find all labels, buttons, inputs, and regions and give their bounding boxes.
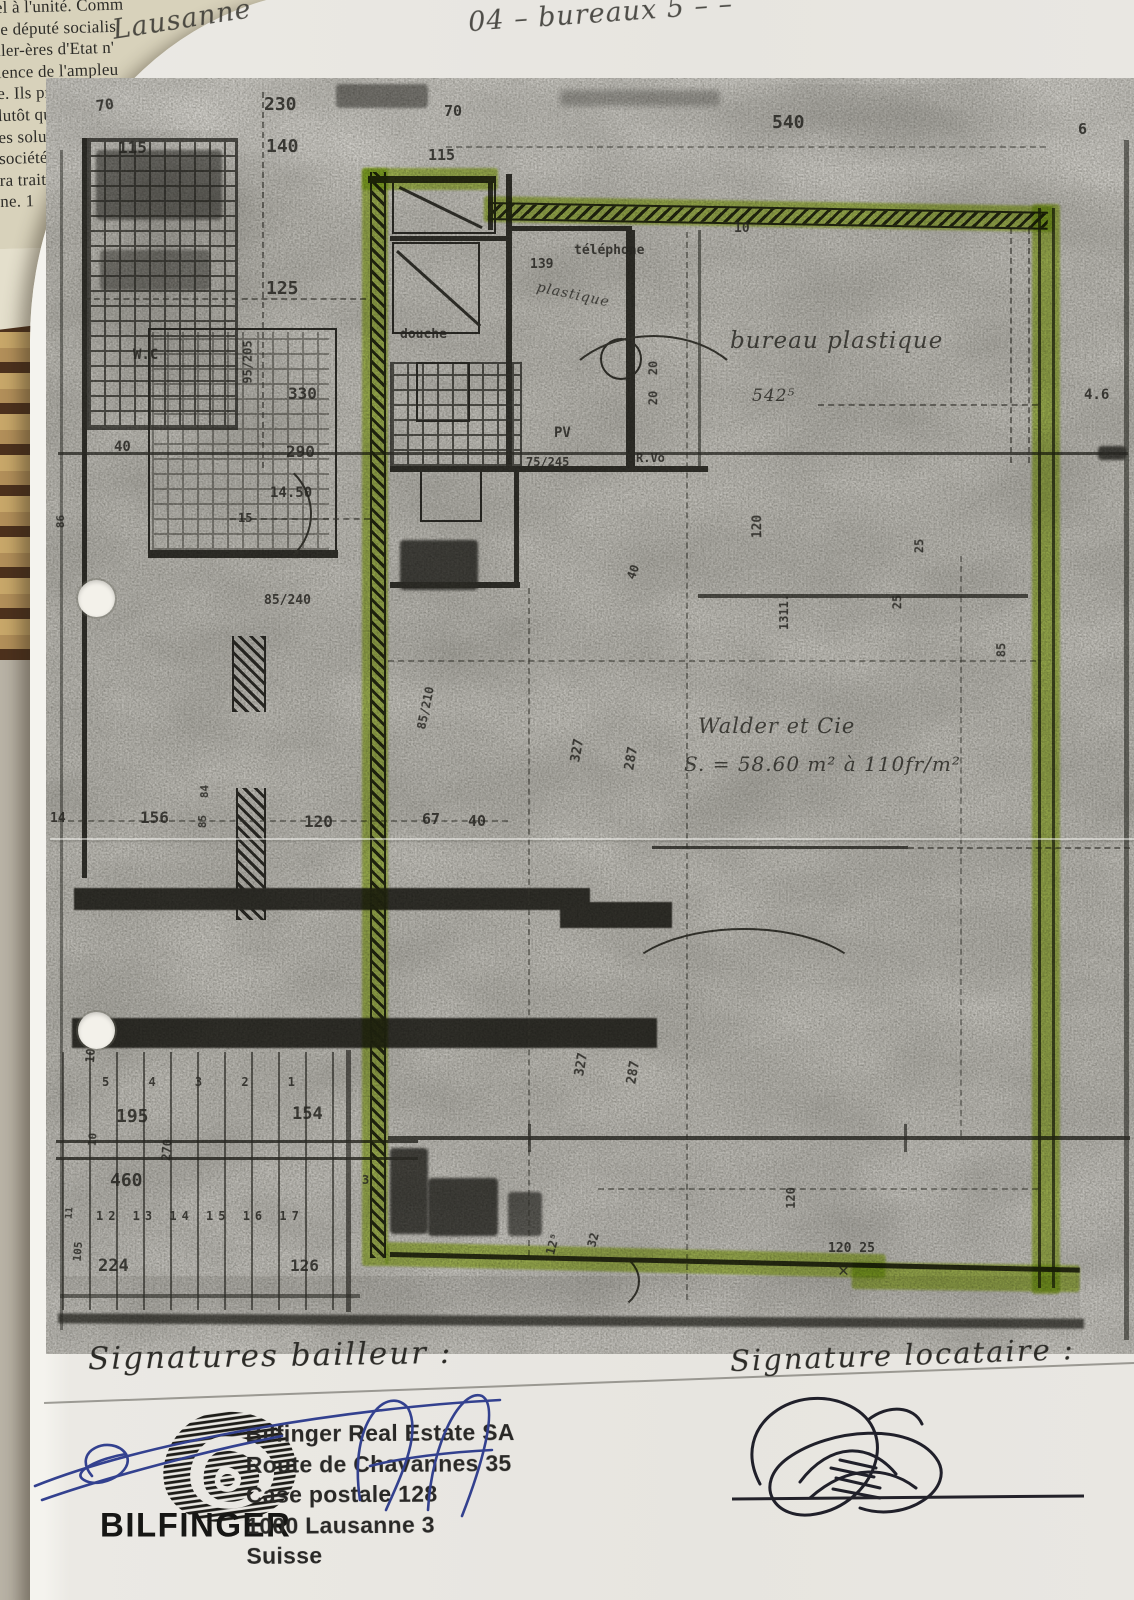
stairwell-smudge xyxy=(96,150,222,220)
plan-right-edge xyxy=(1124,140,1129,1340)
punch-hole xyxy=(78,580,115,617)
highlight-topleft xyxy=(362,168,498,190)
punch-hole xyxy=(78,1012,115,1049)
dim-dash xyxy=(262,92,264,468)
scanned-lease-floor-plan-photo: el à l'unité. Commle député socialisller… xyxy=(0,0,1134,1600)
bailleur-signature xyxy=(30,1378,510,1523)
dim-line-540 xyxy=(58,452,1128,455)
dim-dash xyxy=(84,298,366,300)
dim-tick xyxy=(904,1124,907,1152)
toner-smudge xyxy=(336,84,428,108)
stairs-grid xyxy=(62,1052,352,1310)
kitchen-top-wall xyxy=(510,226,632,231)
corridor-thick-wall xyxy=(74,888,590,910)
bath-bottom-wall xyxy=(390,582,520,588)
dim-dash xyxy=(960,556,962,1136)
dim-dash xyxy=(58,820,508,822)
fixture xyxy=(416,362,470,422)
dim-dash xyxy=(908,847,1130,849)
dim-dash xyxy=(598,1188,1038,1190)
dim-dash xyxy=(446,146,1046,148)
corridor-thick-wall xyxy=(560,902,672,928)
dim-arrow xyxy=(1098,446,1126,460)
dark-room-block xyxy=(390,1148,428,1234)
dim-line xyxy=(652,846,908,849)
dim-line xyxy=(388,1136,1130,1140)
corridor-wall xyxy=(82,138,87,878)
dim-dash xyxy=(818,404,1038,406)
hatched-pillar xyxy=(232,636,266,712)
dark-room-block xyxy=(508,1192,542,1236)
dim-dash xyxy=(528,588,530,1256)
dark-room-block xyxy=(428,1178,498,1236)
highlight-right-wall xyxy=(1032,204,1060,1294)
dim-dash xyxy=(1010,228,1012,463)
vestibule-bottom-wall xyxy=(390,466,708,472)
dim-dash xyxy=(388,660,1036,662)
dim-dash xyxy=(1028,228,1030,463)
locataire-signature xyxy=(718,1362,983,1537)
stairs-edge xyxy=(346,1050,351,1312)
highlight-left-wall xyxy=(362,168,388,1266)
stairwell-smudge xyxy=(100,250,210,290)
door-arc xyxy=(618,928,870,1050)
fixture xyxy=(420,468,482,522)
dim-tick xyxy=(528,1124,531,1152)
dim-dash xyxy=(230,518,370,520)
door-arc xyxy=(190,455,312,573)
stairs-bottom-line xyxy=(60,1294,360,1298)
toner-smudge xyxy=(560,90,720,106)
highlight-bottom-right xyxy=(852,1262,1080,1292)
door-arc xyxy=(555,335,752,477)
bailleur-signature-label: Signatures bailleur : xyxy=(88,1335,453,1377)
bath-side-wall xyxy=(514,470,519,588)
bath-wall xyxy=(390,236,512,241)
dim-line xyxy=(698,594,1028,598)
